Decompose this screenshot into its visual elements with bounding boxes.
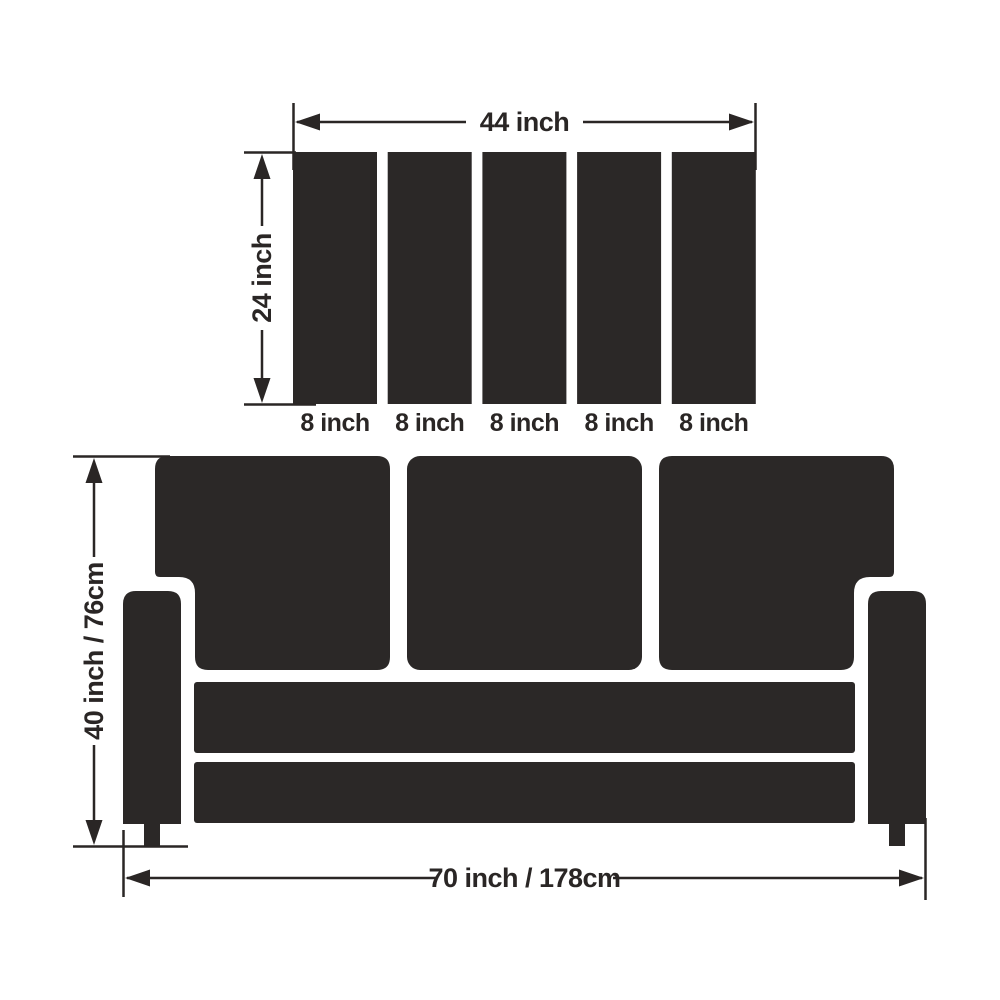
cushion-slat-assembly — [293, 152, 756, 404]
sofa-seat-band — [194, 682, 855, 753]
dim-24-bottom-arrowhead — [254, 378, 271, 403]
cushion-slat-4 — [577, 152, 661, 404]
dimension-diagram-page: 44 inch 24 inch 8 inch 8 inch 8 inch 8 i… — [0, 0, 1000, 1000]
sofa-armrest-left — [123, 591, 181, 824]
cushion-slat-3 — [482, 152, 566, 404]
dim-44-left-arrowhead — [295, 114, 320, 131]
dim-70-right-arrowhead — [899, 870, 924, 887]
sofa-base-band — [194, 762, 855, 823]
dim-70-left-arrowhead — [125, 870, 150, 887]
dimension-70-inch: 70 inch / 178cm — [124, 818, 926, 900]
sofa-foot-right — [889, 823, 905, 846]
sofa-dimension-diagram: 44 inch 24 inch 8 inch 8 inch 8 inch 8 i… — [0, 0, 1000, 1000]
cushion-slat-2 — [388, 152, 472, 404]
sofa-back-cushion-middle — [407, 456, 642, 670]
dim-40-top-arrowhead — [86, 458, 103, 483]
dim-44-right-arrowhead — [729, 114, 754, 131]
sofa-armrest-right — [868, 591, 926, 824]
dim-44-label: 44 inch — [480, 107, 570, 137]
sofa-back-cushion-right — [659, 456, 894, 670]
cushion-slat-1 — [293, 152, 377, 404]
dim-40-bottom-arrowhead — [86, 820, 103, 845]
slat-label-5: 8 inch — [679, 409, 748, 437]
dim-24-label: 24 inch — [247, 233, 277, 323]
slat-label-3: 8 inch — [490, 409, 559, 437]
dim-70-label: 70 inch / 178cm — [428, 863, 620, 893]
sofa-back-cushion-left — [155, 456, 390, 670]
dim-24-top-arrowhead — [254, 154, 271, 179]
dim-40-label: 40 inch / 76cm — [79, 562, 109, 740]
slat-label-2: 8 inch — [395, 409, 464, 437]
cushion-slat-5 — [672, 152, 756, 404]
sofa-silhouette — [123, 456, 926, 846]
slat-label-1: 8 inch — [300, 409, 369, 437]
slat-width-labels: 8 inch 8 inch 8 inch 8 inch 8 inch — [300, 409, 748, 437]
sofa-foot-left — [144, 823, 160, 846]
slat-label-4: 8 inch — [584, 409, 653, 437]
